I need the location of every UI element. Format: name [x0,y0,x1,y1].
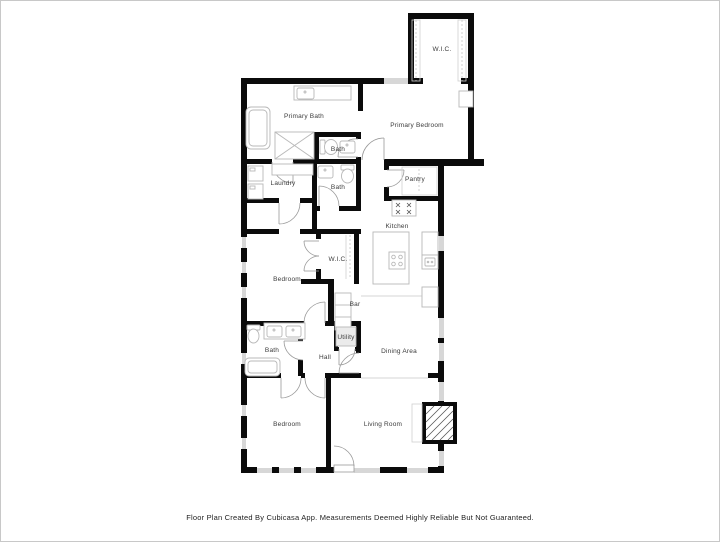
floor-plan-page: W.I.C.Primary BathPrimary BedroomBathLau… [0,0,720,542]
wic-double-door [304,241,319,271]
room-label-wic-mid: W.I.C. [329,256,348,263]
room-label-living-room: Living Room [364,421,402,428]
room-label-bedroom-lower: Bedroom [273,421,301,428]
closet-rail [458,20,466,81]
lower-bedroom-door [281,378,301,398]
floor-plan-drawing: W.I.C.Primary BathPrimary BedroomBathLau… [1,1,720,542]
room-label-wic-top: W.I.C. [433,46,452,53]
hall-dining-door [339,353,359,373]
mid-bedroom-door [304,302,325,323]
sink [318,166,333,178]
dryer [248,184,263,199]
fireplace [412,402,457,444]
room-label-pantry: Pantry [405,176,426,183]
kitchen-sink [422,255,438,269]
bathtub [245,358,280,376]
room-label-dining-area: Dining Area [381,348,417,355]
room-label-bath-upper: Bath [331,146,345,153]
cooktop [389,252,405,269]
living-room-door [305,378,325,398]
room-label-bedroom-mid: Bedroom [273,276,301,283]
bathtub [246,107,270,149]
stove [392,200,416,216]
room-label-kitchen: Kitchen [385,223,408,230]
lower-bath-door [284,341,303,360]
kitchen-counter [422,232,438,255]
pantry-door [387,170,404,187]
area-dividers [361,296,438,378]
room-label-laundry: Laundry [271,180,296,187]
toilet [247,325,260,343]
room-label-hall: Hall [319,354,331,361]
sink [297,88,314,99]
room-label-bath-lower: Bath [265,347,279,354]
primary-bedroom-door [362,138,384,160]
bar-counter [335,293,351,330]
room-label-primary-bath: Primary Bath [284,113,324,120]
room-label-bar: Bar [350,301,361,308]
double-vanity [264,323,305,339]
corridor-door [279,203,300,224]
washer [248,166,263,181]
bedroom-cabinet [459,91,473,107]
room-label-bath-mid: Bath [331,184,345,191]
footer-disclaimer: Floor Plan Created By Cubicasa App. Meas… [1,513,719,522]
room-label-primary-bedroom: Primary Bedroom [390,122,444,129]
shower [275,132,314,159]
laundry-counter [272,164,313,175]
patio-door [334,446,354,472]
room-label-utility: Utility [337,334,355,341]
toilet [341,165,354,183]
kitchen-counter [422,287,438,307]
